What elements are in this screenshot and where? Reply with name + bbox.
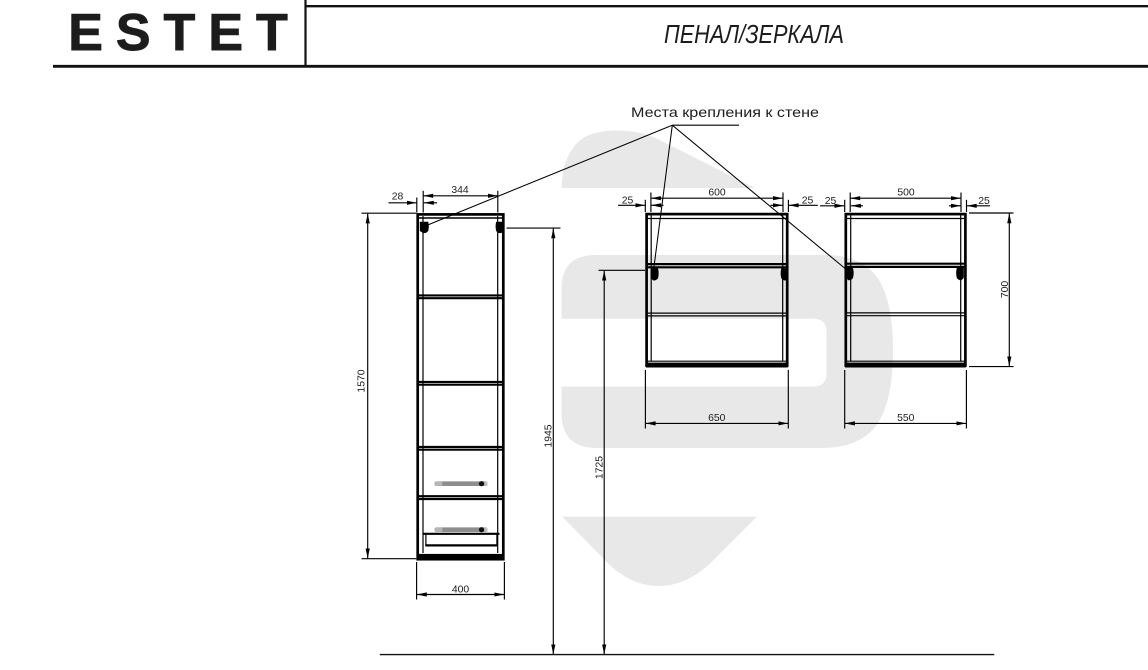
svg-text:1945: 1945 [544, 424, 555, 447]
svg-text:1570: 1570 [356, 369, 367, 392]
svg-text:ПЕНАЛ/ЗЕРКАЛА: ПЕНАЛ/ЗЕРКАЛА [664, 19, 844, 49]
svg-text:28: 28 [392, 192, 404, 203]
svg-text:400: 400 [452, 585, 470, 596]
svg-text:25: 25 [622, 195, 634, 206]
svg-text:25: 25 [978, 196, 990, 207]
svg-text:25: 25 [825, 196, 837, 207]
svg-text:ESTET: ESTET [68, 4, 301, 62]
svg-text:344: 344 [451, 185, 469, 196]
svg-text:Места крепления к стене: Места крепления к стене [631, 104, 819, 120]
svg-text:600: 600 [708, 188, 726, 199]
svg-text:25: 25 [802, 195, 814, 206]
svg-text:550: 550 [897, 413, 915, 424]
svg-text:700: 700 [1000, 281, 1011, 299]
svg-text:1725: 1725 [595, 456, 606, 479]
svg-text:500: 500 [897, 188, 915, 199]
svg-text:650: 650 [708, 413, 726, 424]
